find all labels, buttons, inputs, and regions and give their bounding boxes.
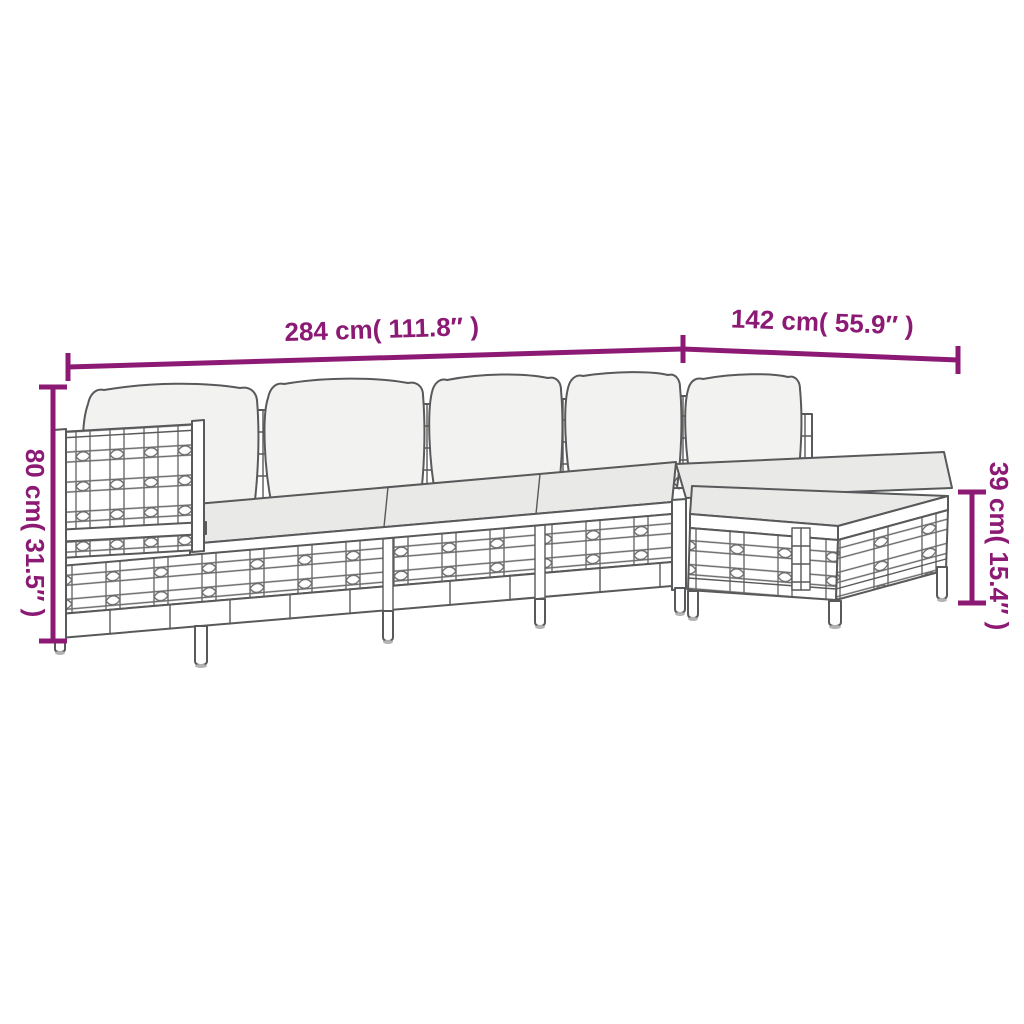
leg [937, 567, 947, 599]
dimension-label-stool-height: 39 cm( 15.4″ ) [984, 462, 1014, 631]
leg [829, 601, 841, 626]
section-divider [383, 538, 393, 612]
sofa-illustration [54, 372, 952, 668]
dimension-line [68, 349, 683, 367]
armrest-right-post [192, 420, 204, 552]
dimension-line [683, 349, 958, 360]
dimension-total-width: 284 cm( 111.8″ ) [68, 311, 683, 381]
leg [675, 588, 685, 613]
leg [688, 591, 698, 618]
dimension-right-depth: 142 cm( 55.9″ ) [683, 303, 958, 374]
footstool-front-face [688, 528, 838, 600]
footstool [688, 486, 948, 600]
dimension-label-total-width: 284 cm( 111.8″ ) [284, 311, 479, 347]
dimension-stool-height: 39 cm( 15.4″ ) [958, 462, 1014, 631]
corner-post [672, 499, 686, 590]
armrest-left-post [54, 429, 66, 641]
product-dimension-diagram: 284 cm( 111.8″ ) 142 cm( 55.9″ ) 80 cm( … [0, 0, 1024, 1024]
section-divider [535, 525, 545, 599]
dimension-label-back-height: 80 cm( 31.5″ ) [20, 449, 50, 618]
leg [383, 611, 393, 641]
leg [535, 599, 545, 626]
dimension-label-right-depth: 142 cm( 55.9″ ) [730, 303, 914, 340]
leg [195, 626, 207, 665]
diagram-canvas: 284 cm( 111.8″ ) 142 cm( 55.9″ ) 80 cm( … [0, 0, 1024, 1024]
